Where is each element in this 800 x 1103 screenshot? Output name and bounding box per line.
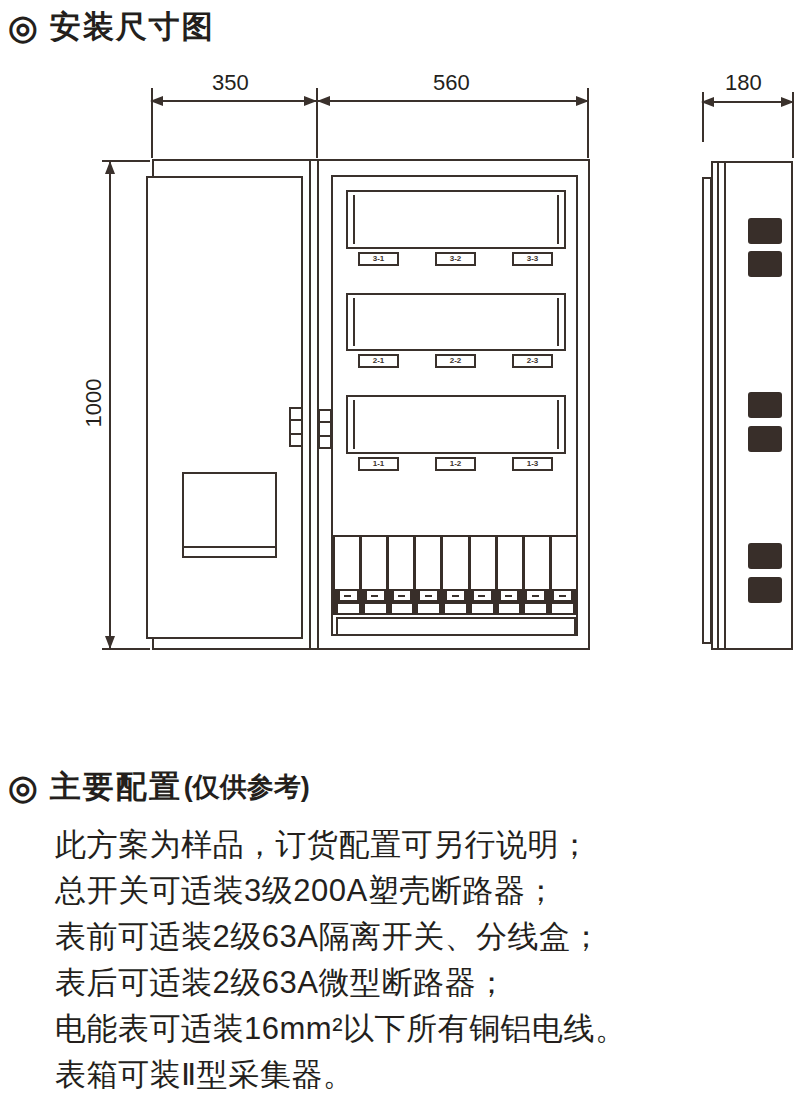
door-latch bbox=[289, 407, 303, 447]
config-line: 电能表可适装16mm²以下所有铜铝电线。 bbox=[55, 1006, 785, 1052]
door-frame-line bbox=[317, 159, 319, 650]
hinge-block bbox=[748, 543, 782, 569]
config-line: 表前可适装2级63A隔离开关、分线盒； bbox=[55, 914, 785, 960]
config-list: 此方案为样品，订货配置可另行说明； 总开关可适装3级200A塑壳断路器； 表前可… bbox=[55, 822, 785, 1098]
window-inner-line bbox=[353, 400, 355, 449]
breaker-cell bbox=[501, 591, 518, 600]
breaker-cell bbox=[527, 591, 544, 600]
dim-label-560: 560 bbox=[433, 70, 470, 96]
breaker-cell bbox=[471, 537, 495, 589]
breaker-cell bbox=[552, 604, 573, 613]
hinge-block bbox=[748, 577, 782, 603]
dim-line-1000 bbox=[109, 162, 111, 648]
meter-window-row3 bbox=[346, 190, 566, 249]
wiring-trough bbox=[336, 617, 576, 636]
window-inner-line bbox=[557, 195, 559, 244]
meter-position-label: 3-2 bbox=[435, 252, 476, 266]
breaker-cell bbox=[362, 537, 386, 589]
breaker-cell bbox=[394, 591, 411, 600]
installation-drawing: 350 560 180 1000 bbox=[0, 0, 800, 700]
breaker-slots-row bbox=[333, 535, 578, 589]
hinge-block bbox=[748, 426, 782, 452]
meter-position-label: 2-2 bbox=[435, 354, 476, 368]
window-inner-line bbox=[557, 400, 559, 449]
side-inner-line bbox=[724, 162, 726, 649]
breaker-cell bbox=[498, 537, 522, 589]
meter-window-row2 bbox=[346, 293, 566, 351]
cabinet-door bbox=[146, 176, 303, 639]
breaker-cell bbox=[554, 591, 571, 600]
section-marker-icon: ◎ bbox=[8, 770, 38, 804]
latch-divider bbox=[291, 419, 301, 421]
dim-label-1000: 1000 bbox=[81, 379, 107, 428]
meter-position-label: 3-3 bbox=[512, 252, 553, 266]
config-line: 表后可适装2级63A微型断路器； bbox=[55, 960, 785, 1006]
window-sill-line bbox=[184, 546, 275, 548]
hinge-block bbox=[748, 392, 782, 418]
meter-position-label: 1-2 bbox=[435, 457, 476, 471]
door-latch bbox=[318, 409, 332, 449]
breaker-cell bbox=[418, 604, 439, 613]
breaker-cell bbox=[420, 591, 437, 600]
breaker-cell bbox=[525, 537, 549, 589]
breaker-cell bbox=[340, 591, 357, 600]
latch-divider bbox=[291, 433, 301, 435]
dim-line-180 bbox=[702, 101, 793, 103]
dim-label-350: 350 bbox=[212, 70, 249, 96]
breaker-cell bbox=[474, 591, 491, 600]
window-inner-line bbox=[557, 298, 559, 346]
hinge-block bbox=[748, 218, 782, 244]
window-inner-line bbox=[353, 195, 355, 244]
latch-divider bbox=[320, 435, 330, 437]
breaker-subs-row bbox=[333, 602, 578, 615]
config-line: 表箱可装Ⅱ型采集器。 bbox=[55, 1052, 785, 1098]
breaker-cell bbox=[367, 591, 384, 600]
meter-position-label: 3-1 bbox=[358, 252, 399, 266]
door-viewing-window bbox=[182, 472, 277, 558]
breaker-cell bbox=[392, 604, 413, 613]
meter-position-label: 1-1 bbox=[358, 457, 399, 471]
breaker-cell bbox=[365, 604, 386, 613]
door-frame-line bbox=[309, 159, 311, 650]
config-line: 总开关可适装3级200A塑壳断路器； bbox=[55, 868, 785, 914]
meter-position-label: 2-1 bbox=[358, 354, 399, 368]
breaker-cell bbox=[416, 537, 440, 589]
dim-label-180: 180 bbox=[725, 70, 762, 96]
config-section-title: 主要配置 bbox=[50, 766, 182, 808]
side-inner-line bbox=[717, 162, 719, 649]
hinge-block bbox=[748, 251, 782, 277]
breaker-cell bbox=[335, 537, 359, 589]
page: ◎ 安装尺寸图 350 560 180 1000 bbox=[0, 0, 800, 1103]
latch-divider bbox=[320, 421, 330, 423]
config-section-header: ◎ 主要配置 (仅供参考) bbox=[8, 766, 310, 808]
breaker-cell bbox=[338, 604, 359, 613]
config-section-subtitle: (仅供参考) bbox=[184, 769, 310, 805]
breaker-cell bbox=[389, 537, 413, 589]
breaker-cell bbox=[472, 604, 493, 613]
breaker-section bbox=[333, 535, 578, 615]
window-inner-line bbox=[353, 298, 355, 346]
breaker-cell bbox=[445, 604, 466, 613]
meter-position-label: 1-3 bbox=[512, 457, 553, 471]
meter-window-row1 bbox=[346, 395, 566, 454]
meter-position-label: 2-3 bbox=[512, 354, 553, 368]
dim-line-350 bbox=[151, 100, 316, 102]
breaker-cell bbox=[552, 537, 576, 589]
dim-line-560 bbox=[318, 100, 588, 102]
breaker-cell bbox=[525, 604, 546, 613]
breaker-tags-row bbox=[333, 589, 578, 602]
breaker-cell bbox=[499, 604, 520, 613]
breaker-cell bbox=[447, 591, 464, 600]
config-line: 此方案为样品，订货配置可另行说明； bbox=[55, 822, 785, 868]
breaker-cell bbox=[443, 537, 467, 589]
